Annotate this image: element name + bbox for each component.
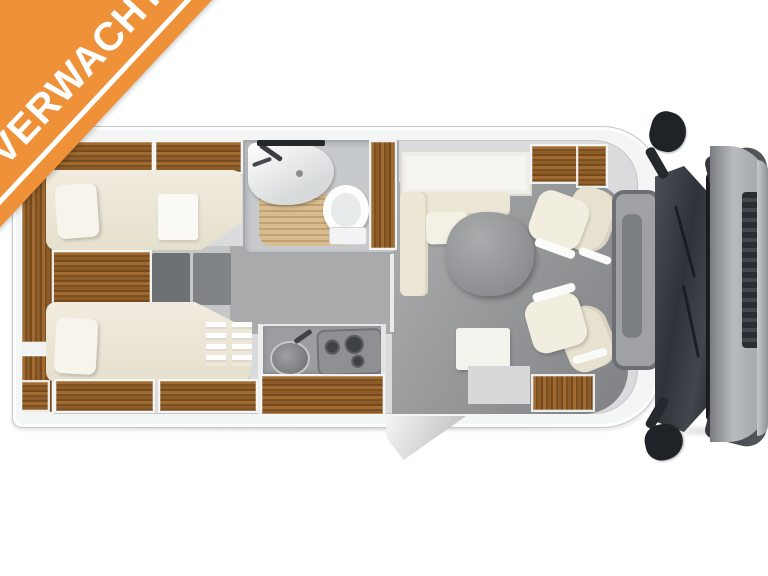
base-cabinet-3	[160, 381, 256, 411]
bathroom-mirror	[257, 140, 325, 146]
kitchen-sink	[270, 341, 310, 376]
step-block-2	[193, 253, 231, 305]
hob-burner	[344, 335, 364, 355]
toilet-tank	[329, 227, 367, 245]
dinette-table	[446, 212, 534, 296]
dropdown-bed-panel	[400, 150, 532, 196]
dinette-bench-left	[400, 192, 428, 296]
bathroom-wood-column	[371, 142, 395, 248]
entry-step-wood	[533, 376, 593, 410]
bed-ladder	[206, 322, 252, 366]
toilet-seat	[331, 193, 361, 227]
overhead-locker-4	[578, 146, 606, 186]
front-bumper	[757, 160, 768, 436]
base-cabinet-1	[22, 382, 48, 410]
entry-side-cabinet	[456, 328, 510, 370]
bed-ladder-rail	[232, 322, 252, 366]
base-cabinet-2	[56, 381, 153, 411]
bed-bottom-pillow	[54, 317, 99, 375]
overhead-locker-2	[156, 142, 241, 172]
floor-divider-line	[390, 248, 394, 332]
basin-drain	[296, 170, 303, 177]
hob-burner	[351, 355, 364, 368]
hob-burner	[325, 339, 341, 355]
entrance-door-open	[386, 416, 466, 460]
galley-floor	[230, 246, 398, 334]
entry-floor-mat	[468, 366, 530, 404]
bed-ladder-rail	[206, 322, 226, 366]
bed-top-duvet	[158, 194, 198, 240]
listing-image: VERWACHT	[0, 0, 768, 576]
kitchen-cabinet-front	[262, 376, 383, 414]
bed-top-pillow	[54, 183, 100, 240]
kitchen-hob	[316, 328, 384, 376]
rear-wood-floor	[48, 252, 150, 304]
step-block-1	[152, 253, 190, 305]
dashboard-inner	[622, 214, 642, 338]
